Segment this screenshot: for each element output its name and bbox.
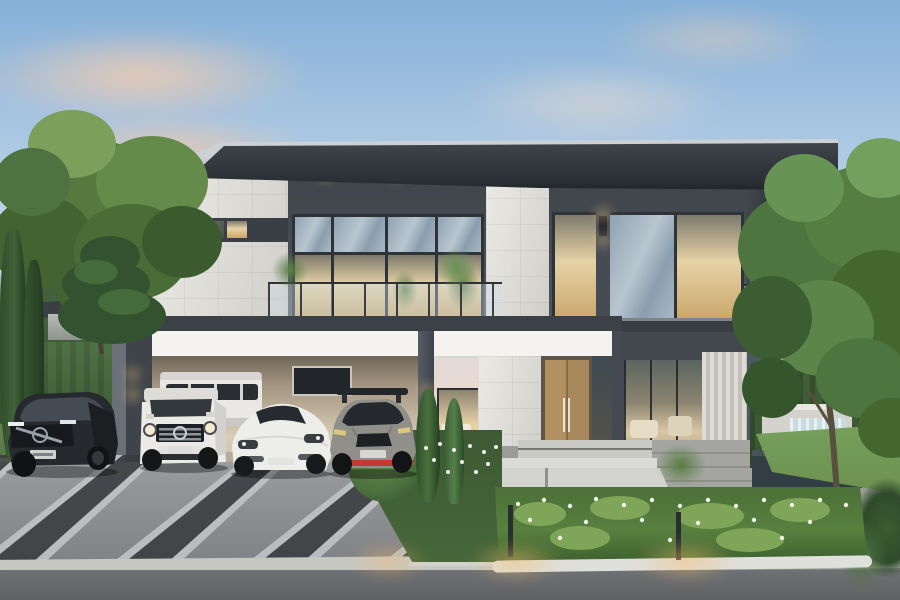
wheel (198, 447, 218, 469)
sconce-glow (597, 236, 609, 244)
fender-indicator (146, 414, 154, 419)
architectural-render-scene (0, 0, 900, 600)
sofa-silhouette (630, 420, 658, 438)
wheel (142, 449, 162, 471)
tree-canopy (732, 138, 900, 458)
window-pane (555, 215, 596, 319)
post-wall-lamp (128, 370, 137, 379)
vehicle-grey-sports-coupe (326, 386, 420, 480)
bollard-glow (468, 542, 564, 582)
door-handles (563, 398, 565, 432)
sofa-silhouette (668, 416, 692, 436)
windshield (150, 399, 212, 417)
path-light-glow (348, 542, 428, 580)
flowers-bed-a (420, 438, 502, 478)
tree-right (712, 128, 900, 518)
window-pane (610, 215, 674, 319)
wheel (234, 456, 254, 476)
vehicle-white-boxy-suv (138, 384, 230, 474)
entrance-fascia (432, 331, 618, 358)
license-plate (268, 458, 294, 465)
wall-sconce (599, 216, 607, 236)
pine-tree-left (48, 228, 173, 353)
wheel (12, 451, 36, 477)
entrance-steps (518, 440, 652, 460)
post-wall-lamp (128, 390, 137, 399)
vehicle-dark-suv (2, 382, 122, 478)
window-pane (334, 217, 385, 252)
balcony-planter-plant (272, 252, 308, 288)
grille (356, 433, 392, 447)
license-plate (360, 450, 386, 458)
cloud (600, 6, 830, 70)
rear-wing (336, 388, 408, 395)
license-plate (168, 446, 192, 454)
wheel (332, 453, 352, 475)
headlight (8, 422, 24, 426)
headlight (304, 434, 324, 443)
wheel (392, 451, 412, 473)
road (0, 570, 900, 600)
headlight (238, 440, 258, 449)
bollard-glow (636, 540, 736, 582)
window-pane (295, 217, 331, 252)
fender-indicator (206, 412, 214, 417)
round-headlight (204, 422, 216, 434)
window-pane (438, 217, 481, 252)
garden-bed-small (656, 444, 706, 486)
balcony-planter-plant (436, 248, 476, 288)
sconce-glow (597, 210, 609, 218)
cloud (455, 62, 735, 142)
vehicle-white-sports-sedan (226, 394, 336, 480)
headlight (60, 420, 76, 424)
round-headlight (144, 424, 156, 436)
wheel (306, 454, 326, 474)
window-pane (388, 217, 435, 252)
